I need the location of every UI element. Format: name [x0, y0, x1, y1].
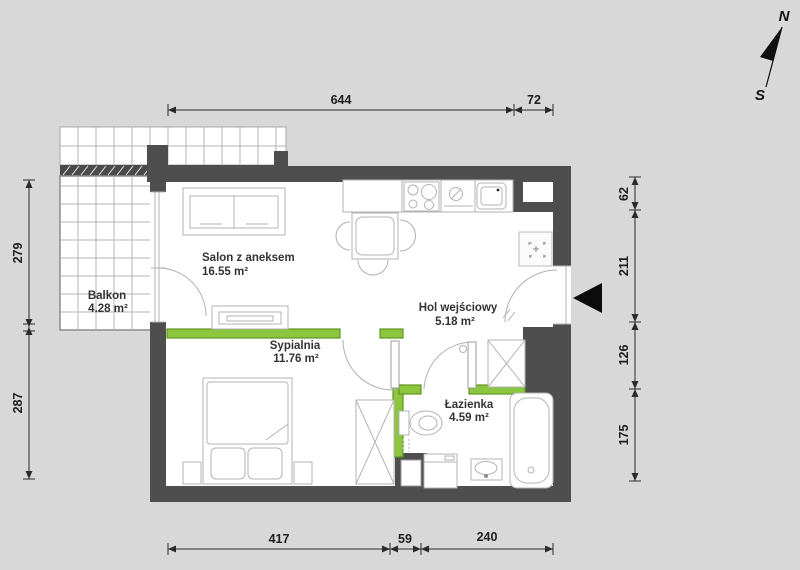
label-lazienka-area: 4.59 m² — [449, 412, 489, 424]
compass-north-label: N — [779, 8, 791, 25]
dim-right-126: 126 — [617, 345, 631, 366]
label-hol-area: 5.18 m² — [435, 316, 475, 328]
wardrobe-bedroom — [356, 400, 394, 484]
dim-right-62: 62 — [617, 187, 631, 201]
dim-right-211: 211 — [617, 256, 631, 276]
sofa — [183, 188, 285, 235]
label-balkon-area: 4.28 m² — [88, 303, 128, 315]
floor-plan-drawing: Salon z aneksem 16.55 m² Sypialnia 11.76… — [0, 0, 800, 570]
dim-bottom-59: 59 — [398, 532, 412, 546]
compass-south-label: S — [755, 87, 765, 104]
label-sypialnia-name: Sypialnia — [270, 340, 321, 352]
dim-bottom-417: 417 — [269, 532, 290, 546]
dim-top-644: 644 — [331, 93, 352, 107]
label-salon-area: 16.55 m² — [202, 266, 248, 278]
dim-left-287: 287 — [11, 393, 25, 414]
label-hol-name: Hol wejściowy — [419, 302, 498, 314]
dim-left-279: 279 — [11, 243, 25, 264]
tv-cabinet — [212, 306, 288, 329]
neighbor-balcony — [60, 127, 286, 165]
dim-top-72: 72 — [527, 93, 541, 107]
bathtub-icon — [510, 393, 553, 488]
label-salon-name: Salon z aneksem — [202, 252, 295, 264]
nightstand — [183, 462, 201, 484]
dim-bottom-240: 240 — [477, 530, 498, 544]
utility-box — [519, 232, 552, 266]
label-sypialnia-area: 11.76 m² — [273, 353, 319, 365]
wardrobe-hall — [488, 340, 525, 387]
kitchen-counter — [343, 180, 513, 212]
label-balkon-name: Balkon — [88, 290, 126, 302]
nightstand — [294, 462, 312, 484]
floor-plan-canvas: Salon z aneksem 16.55 m² Sypialnia 11.76… — [0, 0, 800, 570]
dim-right-175: 175 — [617, 425, 631, 446]
label-lazienka-name: Łazienka — [445, 399, 494, 411]
washing-machine-icon — [424, 454, 457, 488]
bathroom-sink-icon — [471, 459, 502, 480]
